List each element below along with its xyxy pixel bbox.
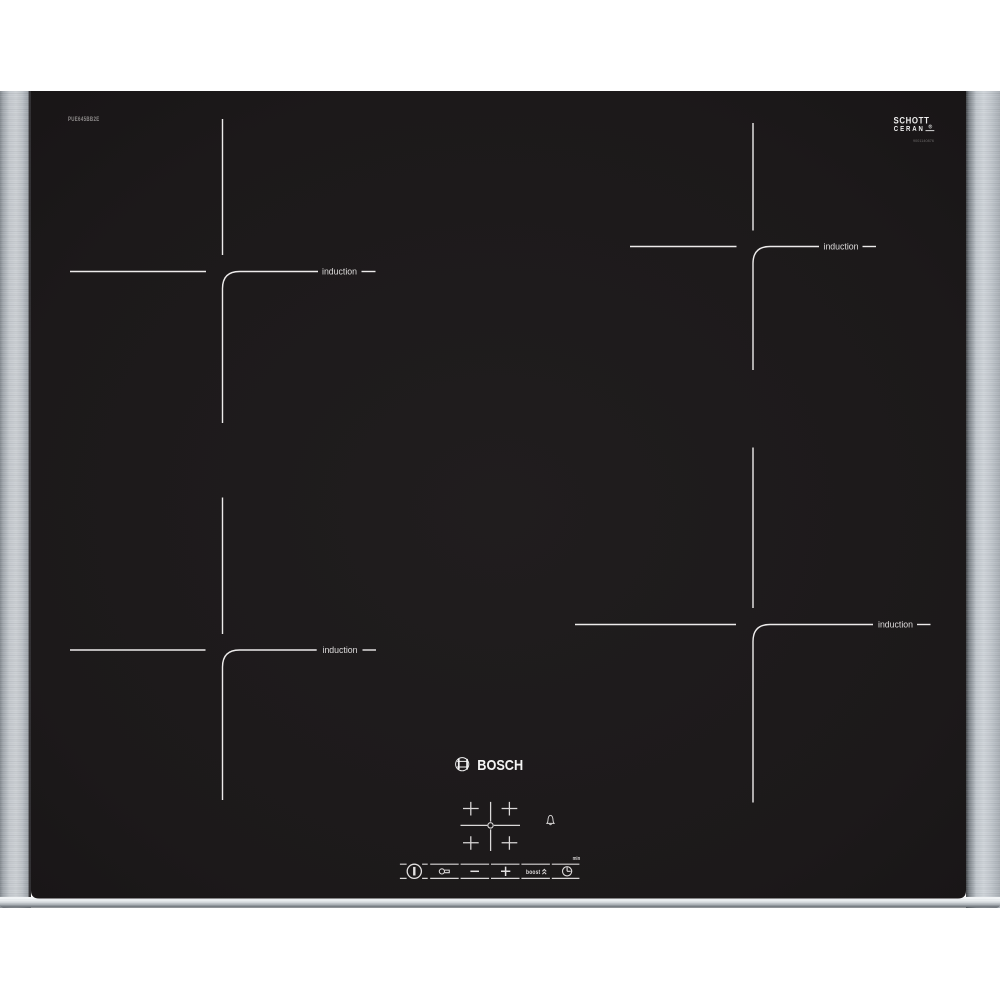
svg-text:induction: induction <box>824 241 859 252</box>
svg-text:induction: induction <box>322 266 357 277</box>
svg-text:induction: induction <box>878 619 913 630</box>
svg-text:9001140876: 9001140876 <box>913 138 935 143</box>
svg-text:CERAN: CERAN <box>894 126 925 133</box>
svg-text:boost: boost <box>526 869 541 876</box>
svg-text:min: min <box>573 856 581 862</box>
svg-text:induction: induction <box>323 644 358 655</box>
svg-text:PUE645BB2E: PUE645BB2E <box>68 116 100 123</box>
svg-text:SCHOTT: SCHOTT <box>894 116 930 126</box>
svg-text:BOSCH: BOSCH <box>477 758 523 774</box>
svg-text:®: ® <box>929 124 933 131</box>
